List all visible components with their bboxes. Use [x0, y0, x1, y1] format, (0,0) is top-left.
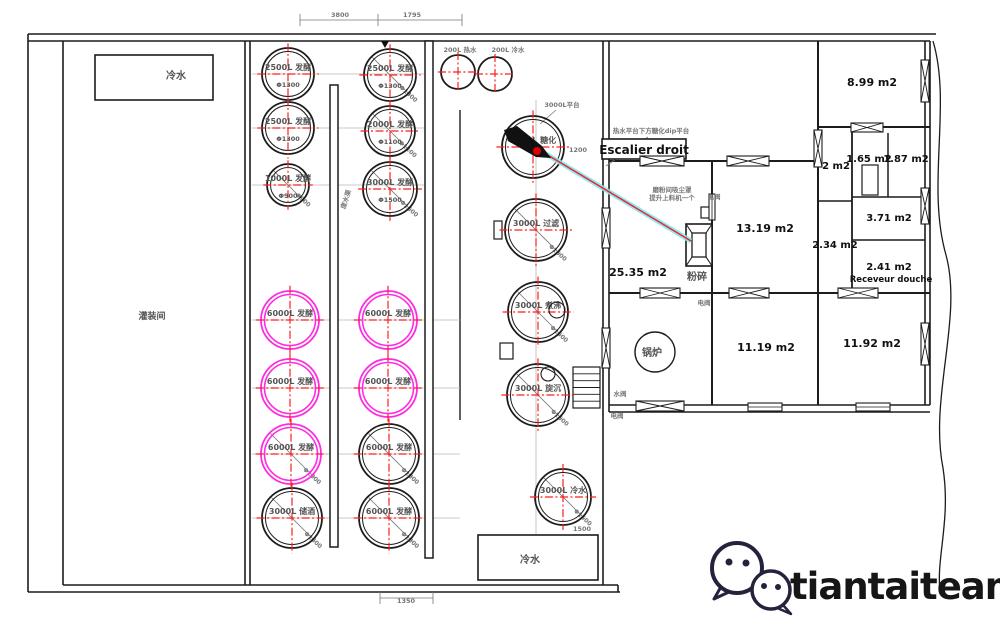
room-area-label: 8.99 m2 — [847, 76, 897, 89]
tank-label: 2500L 发酵 — [367, 63, 413, 73]
annotation-text: 电阀 — [611, 411, 625, 420]
tank-sub-label: Φ1500 — [378, 196, 402, 204]
tank-label: 6000L 发酵 — [267, 308, 313, 318]
pointer-arrow-dot — [533, 147, 541, 155]
wechat-logo-eye — [726, 559, 733, 566]
tank-label: 6000L 发酵 — [365, 308, 411, 318]
tank-label: 3000L 旋沉 — [515, 383, 561, 393]
equipment-label: 冷水 — [520, 553, 541, 566]
annotation-text: 提升上料机一个 — [649, 193, 695, 202]
room-area-label: 2.34 m2 — [812, 240, 858, 251]
paper-break-line — [933, 41, 951, 592]
tank-label: 6000L 发酵 — [267, 376, 313, 386]
room-area-label: 11.92 m2 — [843, 337, 901, 350]
tank-label: 3000L 冷水 — [540, 485, 587, 495]
annotation-text: 废水渠 — [338, 188, 353, 210]
room-area-label: 1.87 m2 — [883, 154, 929, 165]
dimension-text: 1795 — [403, 11, 422, 19]
tank-sub-label: Φ1300 — [378, 82, 402, 90]
structure-rect — [95, 55, 213, 100]
tank-label: 1000L 发酵 — [265, 173, 311, 183]
tank-label: 6000L 发酵 — [365, 376, 411, 386]
tank-label: 3000L 发酵 — [367, 177, 413, 187]
room-area-label: Escalier droit — [599, 143, 689, 157]
equipment-label: 锅炉 — [642, 346, 662, 359]
tank-label: 6000L 发酵 — [366, 442, 412, 452]
wechat-logo-eye — [775, 584, 781, 590]
tank-label: 3000L 储酒 — [269, 506, 315, 516]
equipment-label: 冷水 — [166, 69, 187, 82]
annotation-text: 水阀 — [614, 389, 628, 398]
tank-label: 2000L 发酵 — [367, 119, 413, 129]
annotation-text: 磨粉间吸尘罩 — [653, 185, 693, 194]
structure-rect — [425, 41, 433, 558]
tank-label: 3000L 煮沸 — [515, 300, 561, 310]
tank-sub-label: Φ1100 — [378, 138, 402, 146]
tank-label: 6000L 发酵 — [268, 442, 314, 452]
structure-rect — [500, 343, 513, 359]
brand-text: tiantaiteam — [790, 565, 1000, 608]
room-area-label: Receveur douche — [850, 275, 933, 285]
tank-sub-label: Φ1300 — [276, 135, 300, 143]
annotation-text: 3000L平台 — [544, 100, 580, 109]
annotation-text: 200L 热水 — [444, 45, 477, 54]
dimension-text: 1350 — [397, 597, 416, 605]
annotation-text: 电阀 — [698, 298, 712, 307]
brewery-floor-plan: 2500L 发酵Φ13002500L 发酵Φ1300Φ9001000L 发酵Φ9… — [0, 0, 1000, 621]
dimension-text: 1500 — [573, 525, 592, 533]
wechat-logo-bubble — [752, 571, 790, 609]
tank-label: 2500L 发酵 — [265, 116, 311, 126]
tank-sub-label: Φ900 — [278, 192, 298, 200]
wechat-logo-eye — [743, 560, 750, 567]
room-area-label: 13.19 m2 — [736, 222, 794, 235]
annotation-text: 200L 冷水 — [492, 45, 525, 54]
tank-label: 3000L 过滤 — [513, 218, 559, 228]
tank-label: 2500L 发酵 — [265, 62, 311, 72]
dimension-text: 1200 — [569, 146, 588, 154]
room-area-label: 3.71 m2 — [866, 213, 912, 224]
equipment-label: 粉碎 — [687, 270, 707, 283]
wechat-logo-eye — [761, 583, 767, 589]
tank-sub-label: Φ1300 — [276, 81, 300, 89]
wall-marker — [381, 41, 389, 48]
annotation-text: 电阀 — [708, 192, 722, 201]
structure-rect — [862, 165, 878, 195]
room-area-label: 25.35 m2 — [609, 266, 667, 279]
floor-plan-page: 2500L 发酵Φ13002500L 发酵Φ1300Φ9001000L 发酵Φ9… — [0, 0, 1000, 621]
room-area-label: 11.19 m2 — [737, 341, 795, 354]
dimension-text: 3800 — [331, 11, 350, 19]
annotation-text: 热水平台下方糖化dip平台 — [613, 126, 690, 135]
room-area-label: 2.41 m2 — [866, 262, 912, 273]
tank-label: 6000L 发酵 — [366, 506, 412, 516]
structure-rect — [330, 85, 338, 547]
equipment-label: 灌装间 — [138, 310, 165, 322]
